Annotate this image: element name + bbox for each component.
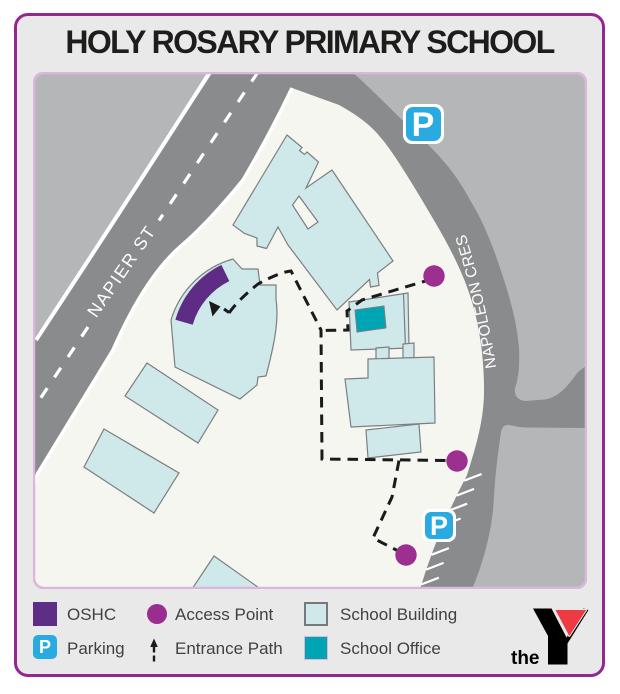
svg-text:P: P [412, 106, 435, 144]
svg-text:the: the [511, 648, 540, 669]
svg-text:P: P [430, 511, 448, 541]
